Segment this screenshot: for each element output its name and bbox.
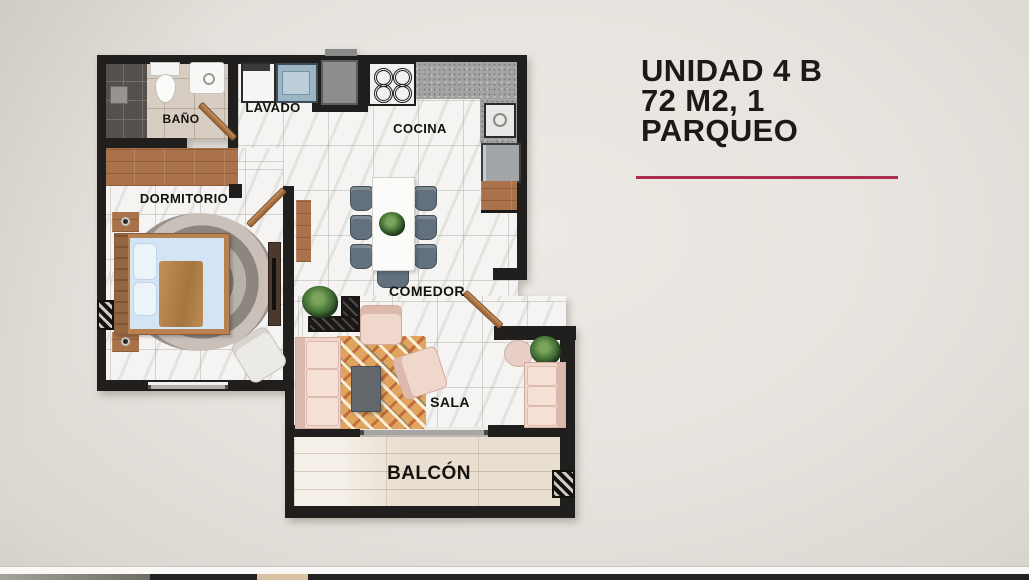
sofa-left <box>295 337 341 429</box>
slide-edge-light-strip <box>0 567 1029 574</box>
washer-controls <box>243 64 270 71</box>
table-plant <box>379 212 405 236</box>
lamp <box>121 217 130 226</box>
partition-wall <box>341 296 360 318</box>
elevator-shaft <box>321 60 358 105</box>
wall-segment <box>312 105 368 112</box>
next-slide-edge-accent <box>257 574 308 580</box>
kitchen-cabinet-wood <box>481 181 517 213</box>
structural-column <box>97 300 114 330</box>
sofa-cushion <box>306 341 339 369</box>
dining-chair <box>350 244 373 269</box>
nightstand <box>112 332 139 352</box>
sofa-cushion <box>527 406 557 426</box>
sofa-back <box>296 338 305 428</box>
headboard <box>115 234 128 334</box>
tv-console <box>268 242 281 326</box>
dining-chair <box>350 186 373 211</box>
structural-column <box>552 470 575 498</box>
burner <box>374 84 393 103</box>
armchair-top <box>360 305 402 345</box>
wall-segment <box>285 506 575 518</box>
title-divider-line <box>636 176 898 179</box>
next-slide-edge <box>0 574 1029 580</box>
room-label-bathroom: BAÑO <box>150 112 212 126</box>
stove <box>368 62 416 106</box>
pillow <box>133 282 157 316</box>
wall-segment <box>285 391 294 437</box>
dining-chair <box>414 244 437 269</box>
dining-chair <box>414 186 437 211</box>
shower-drain <box>110 86 128 104</box>
partition-wall <box>308 316 360 332</box>
pillow <box>133 243 157 280</box>
sofa-right <box>524 362 566 428</box>
lamp <box>121 337 130 346</box>
blanket <box>159 261 203 327</box>
floor-plant <box>302 286 338 318</box>
sideboard <box>296 200 311 262</box>
wall-segment <box>229 184 242 198</box>
laundry-basin <box>282 71 310 95</box>
room-label-living: SALA <box>426 394 474 410</box>
floor-plan: BAÑO LAVADO COCINA DORMITORIO COMEDOR SA… <box>0 0 1029 580</box>
refrigerator <box>481 143 521 183</box>
unit-title-line-1: UNIDAD 4 B <box>641 56 822 86</box>
wall-segment <box>97 55 106 391</box>
laundry-sink <box>276 63 318 103</box>
dining-chair <box>414 215 437 240</box>
wall-segment <box>493 268 527 280</box>
sofa-cushion <box>306 397 339 426</box>
next-slide-edge-left <box>0 574 150 580</box>
burner <box>393 84 412 103</box>
room-label-kitchen: COCINA <box>388 121 452 136</box>
bed <box>114 233 230 335</box>
room-label-dining: COMEDOR <box>388 283 466 299</box>
bathroom-sink <box>189 62 225 94</box>
sofa-cushion <box>527 366 557 386</box>
room-label-laundry: LAVADO <box>241 100 305 115</box>
kitchen-faucet <box>493 113 507 127</box>
room-label-balcony: BALCÓN <box>374 463 484 485</box>
sofa-back <box>557 363 565 427</box>
sofa-cushion <box>306 369 339 397</box>
unit-title-line-2: 72 M2, 1 <box>641 86 822 116</box>
slide-canvas: BAÑO LAVADO COCINA DORMITORIO COMEDOR SA… <box>0 0 1029 580</box>
wall-segment <box>97 138 187 148</box>
closet-wood-floor <box>104 148 238 186</box>
nightstand <box>112 212 139 232</box>
unit-title: UNIDAD 4 B 72 M2, 1 PARQUEO <box>641 56 822 146</box>
wall-segment <box>285 430 294 518</box>
kitchen-counter-top <box>412 62 517 99</box>
bedroom-window <box>148 382 228 389</box>
floor-plant <box>530 336 561 365</box>
tv <box>272 258 276 310</box>
unit-title-line-3: PARQUEO <box>641 116 822 146</box>
sink-faucet <box>203 73 215 85</box>
kitchen-sink <box>484 103 516 138</box>
washing-machine <box>241 62 276 103</box>
room-label-bedroom: DORMITORIO <box>138 191 230 206</box>
dining-chair <box>350 215 373 240</box>
sofa-cushion <box>527 386 557 406</box>
shaft-tab <box>325 49 357 56</box>
wall-segment <box>358 55 368 112</box>
coffee-table <box>351 366 381 412</box>
